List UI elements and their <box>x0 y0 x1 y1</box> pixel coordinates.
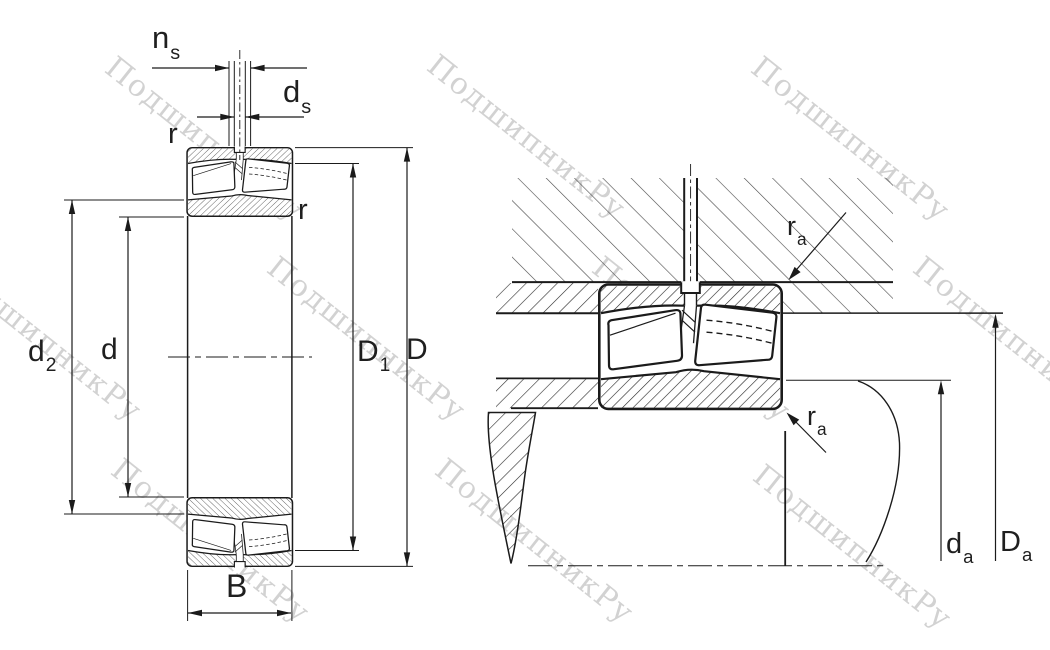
bearing-drawing <box>0 0 1050 650</box>
technical-drawing-page: ПодшипникРу ПодшипникРу ПодшипникРу Подш… <box>0 0 1050 650</box>
shaft-contour <box>785 381 899 566</box>
label-D: D <box>406 335 428 365</box>
label-B: B <box>226 570 247 602</box>
shaft-shoulder-section <box>488 378 598 563</box>
label-Da: Da <box>1000 528 1032 561</box>
label-ra-shaft: ra <box>807 403 827 435</box>
dimension-d <box>125 217 131 497</box>
label-ds: ds <box>283 76 311 114</box>
right-mounting-figure <box>488 164 1003 566</box>
label-ns: ns <box>152 22 180 60</box>
dimension-D1 <box>350 164 356 551</box>
dimension-Da <box>992 314 998 561</box>
label-D1: D1 <box>357 337 390 372</box>
dimension-d2 <box>69 200 75 514</box>
label-da: da <box>946 530 973 563</box>
label-ra-housing: ra <box>787 213 807 245</box>
label-r-inner: r <box>298 196 308 225</box>
label-d2: d2 <box>28 337 56 372</box>
label-r-outer: r <box>168 120 178 149</box>
label-d: d <box>101 335 118 365</box>
